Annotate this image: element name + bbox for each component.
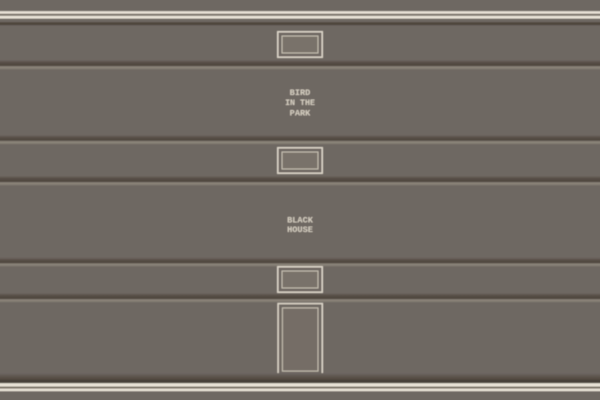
svg-text:HOUSE: HOUSE <box>287 225 313 235</box>
svg-text:PARK: PARK <box>290 108 311 118</box>
svg-text:BIRD: BIRD <box>290 88 311 98</box>
svg-text:BLACK: BLACK <box>287 216 314 226</box>
svg-text:IN THE: IN THE <box>285 99 315 108</box>
